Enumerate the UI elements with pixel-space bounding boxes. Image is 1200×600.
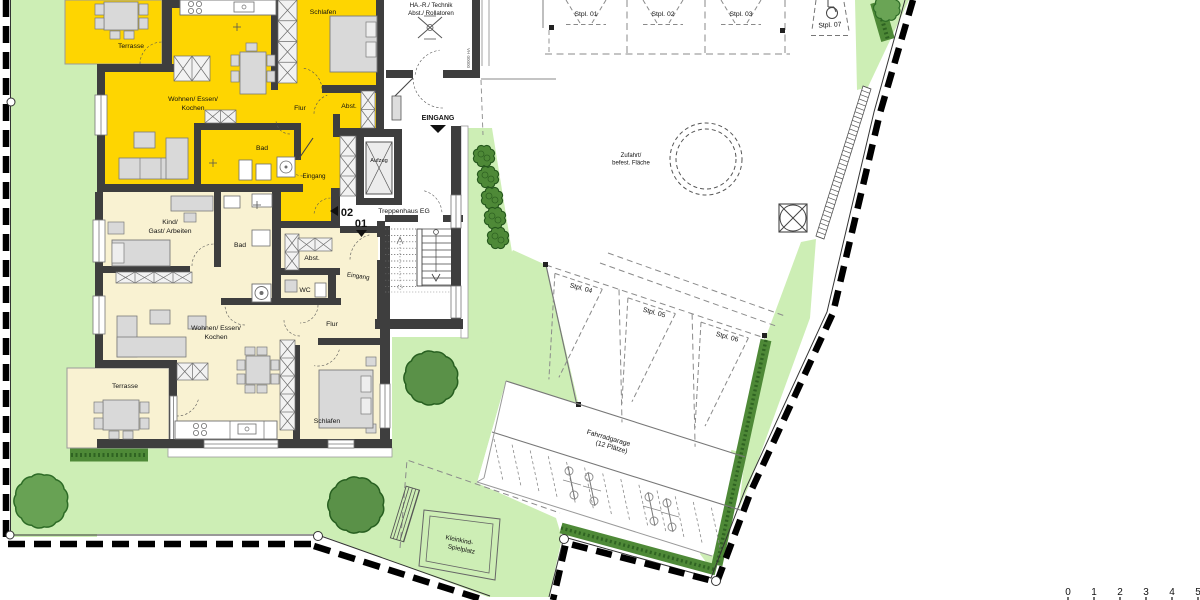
svg-text:Stpl. 07: Stpl. 07	[818, 21, 842, 29]
svg-text:Abst.: Abst.	[341, 103, 357, 110]
svg-text:Bad: Bad	[256, 145, 268, 152]
svg-text:befest. Fläche: befest. Fläche	[612, 161, 650, 167]
svg-text:Stpl. 03: Stpl. 03	[729, 11, 752, 18]
svg-text:Stpl. 02: Stpl. 02	[651, 11, 674, 18]
svg-text:02: 02	[341, 207, 353, 219]
svg-text:Abst.: Abst.	[304, 255, 320, 262]
svg-text:Stpl. 01: Stpl. 01	[574, 11, 597, 18]
svg-text:Zufahrt/: Zufahrt/	[621, 153, 642, 159]
svg-text:4: 4	[1169, 587, 1175, 598]
svg-text:Abst./ Rollatoren: Abst./ Rollatoren	[408, 10, 454, 17]
svg-text:Gast/ Arbeiten: Gast/ Arbeiten	[148, 228, 191, 235]
svg-text:0: 0	[1065, 587, 1071, 598]
svg-text:Kochen: Kochen	[204, 334, 227, 341]
svg-text:Bad: Bad	[234, 242, 246, 249]
svg-text:Schlafen: Schlafen	[314, 418, 341, 425]
svg-text:HA.-R./ Technik: HA.-R./ Technik	[410, 2, 454, 9]
svg-text:WC: WC	[299, 287, 310, 294]
svg-text:Flur: Flur	[326, 321, 338, 328]
svg-text:Flur: Flur	[294, 105, 306, 112]
svg-text:Treppenhaus EG: Treppenhaus EG	[378, 208, 430, 215]
svg-text:Kochen: Kochen	[181, 105, 204, 112]
svg-text:Eingang: Eingang	[302, 173, 326, 180]
svg-text:Schlafen: Schlafen	[310, 9, 337, 16]
svg-text:Terrasse: Terrasse	[112, 383, 138, 390]
svg-text:Terrasse: Terrasse	[118, 43, 144, 50]
svg-text:Kind/: Kind/	[162, 219, 178, 226]
svg-text:5: 5	[1195, 587, 1200, 598]
svg-text:00000 HA: 00000 HA	[466, 48, 471, 68]
svg-text:Wohnen/ Essen/: Wohnen/ Essen/	[168, 96, 218, 103]
svg-text:3: 3	[1143, 587, 1149, 598]
svg-text:EINGANG: EINGANG	[422, 115, 455, 122]
svg-text:2: 2	[1117, 587, 1123, 598]
svg-text:Aufzug: Aufzug	[370, 158, 387, 164]
svg-text:01: 01	[355, 218, 367, 230]
svg-text:Wohnen/ Essen/: Wohnen/ Essen/	[191, 325, 241, 332]
svg-text:1: 1	[1091, 587, 1097, 598]
